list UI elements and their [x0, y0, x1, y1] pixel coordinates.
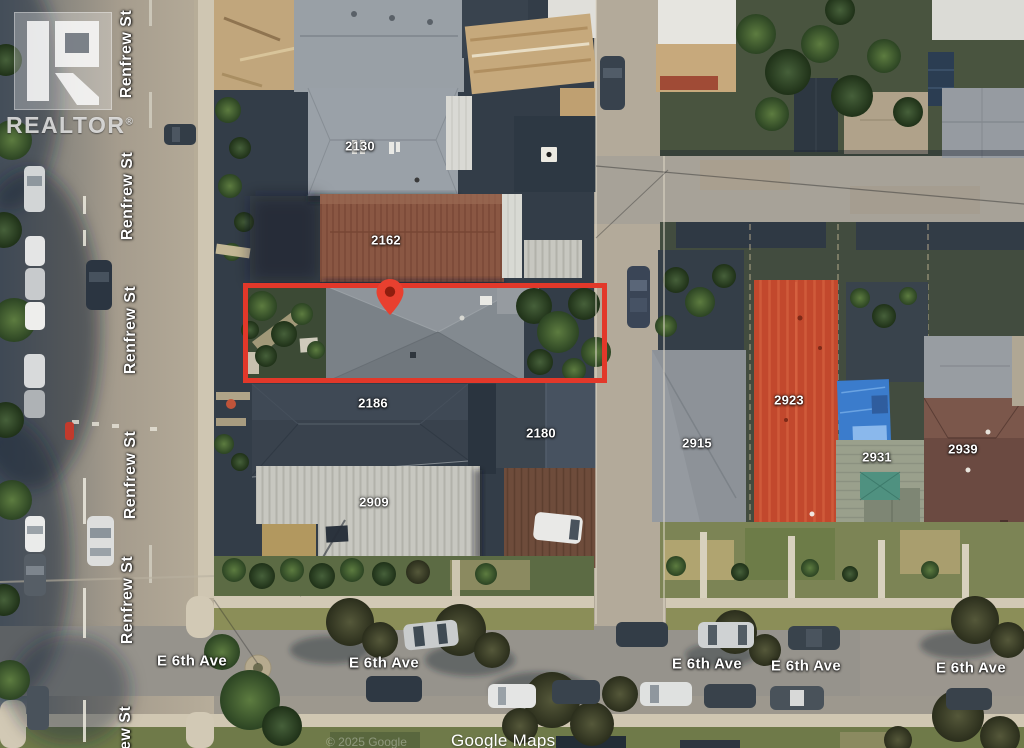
copyright-watermark: © 2025 Google — [326, 735, 407, 748]
google-maps-attribution: Google Maps — [451, 731, 555, 748]
satellite-map-screenshot[interactable]: Renfrew StRenfrew StRenfrew StRenfrew St… — [0, 0, 1024, 748]
property-highlight-rectangle — [243, 283, 607, 383]
realtor-logo-icon — [14, 12, 112, 110]
realtor-logo-watermark: REALTOR® — [6, 12, 136, 139]
realtor-logo-text: REALTOR® — [6, 112, 136, 139]
map-pin-icon — [377, 279, 404, 315]
